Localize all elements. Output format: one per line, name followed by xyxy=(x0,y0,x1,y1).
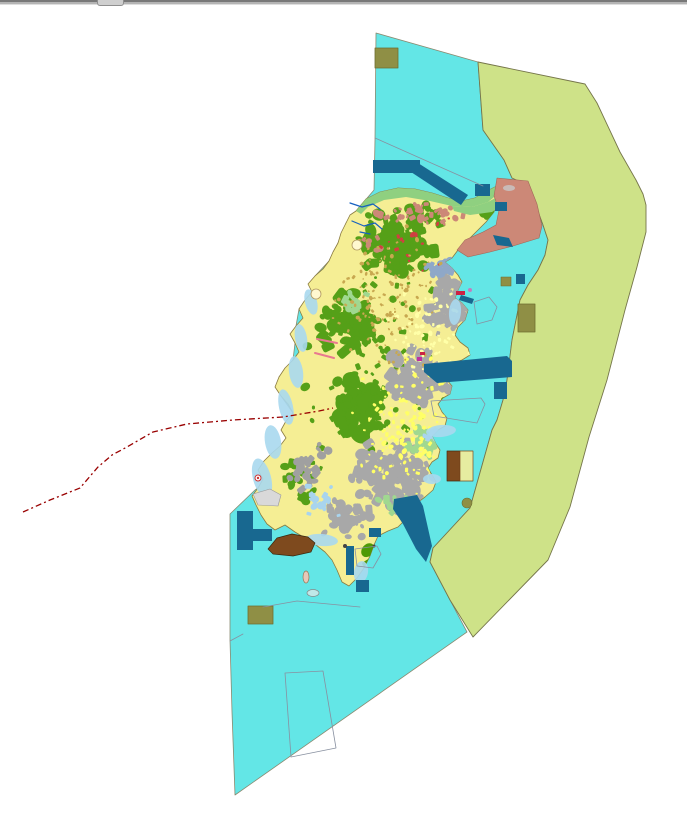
zone-block-khaki xyxy=(518,304,535,332)
yellow-speck-texture xyxy=(382,475,385,479)
channel-texture xyxy=(305,484,312,489)
parcel-web-texture xyxy=(384,264,387,268)
yellow-speck-texture xyxy=(430,386,434,391)
map-viewport xyxy=(0,0,687,821)
zone-block-khaki xyxy=(375,48,398,68)
islet xyxy=(307,590,319,597)
urban-texture xyxy=(378,455,388,469)
yellow-speck-texture xyxy=(363,429,366,431)
harbor-block xyxy=(346,546,354,575)
harbor-block xyxy=(369,528,381,537)
pond-circle xyxy=(352,240,362,250)
yellow-speck-texture xyxy=(427,409,429,412)
forest-texture xyxy=(349,395,353,400)
zone-block-khaki xyxy=(462,498,472,508)
tidal-flat xyxy=(423,474,441,484)
yellow-speck-texture xyxy=(415,493,417,495)
facility-block-pale xyxy=(460,451,473,481)
forest-texture xyxy=(328,310,332,313)
pale-speck-texture xyxy=(411,365,415,368)
forest-texture xyxy=(428,243,440,258)
parcel-web-texture xyxy=(421,285,423,286)
channel-texture xyxy=(423,434,428,438)
urban-texture xyxy=(423,303,435,312)
salmon-speck-texture xyxy=(429,212,433,218)
yellow-speck-texture xyxy=(382,443,386,446)
pale-speck-texture xyxy=(415,325,419,328)
reclaimed-land-spot xyxy=(503,185,515,191)
yellow-speck-texture xyxy=(403,435,405,437)
channel-texture xyxy=(311,493,316,500)
port-mark xyxy=(420,352,425,355)
parcel-web-texture xyxy=(378,297,381,299)
beacon-mark xyxy=(257,477,259,479)
parcel-web-texture xyxy=(388,361,391,365)
islet xyxy=(343,544,347,548)
yellow-speck-texture xyxy=(378,467,381,472)
pale-speck-texture xyxy=(437,335,440,337)
yellow-speck-texture xyxy=(385,432,389,437)
forest-texture xyxy=(370,400,373,404)
zone-block-khaki xyxy=(248,606,273,624)
salmon-speck-texture xyxy=(378,211,382,216)
parcel-web-texture xyxy=(388,298,390,300)
islet xyxy=(303,571,309,583)
yellow-speck-texture xyxy=(371,443,374,445)
salmon-speck-texture xyxy=(423,202,429,206)
port-mark xyxy=(456,291,465,295)
yellow-speck-texture xyxy=(399,399,404,403)
parcel-web-texture xyxy=(365,315,367,317)
zone-block-khaki xyxy=(501,277,511,286)
harbor-block xyxy=(516,274,525,284)
port-mark xyxy=(468,288,472,292)
forest-texture xyxy=(408,237,414,242)
urban-texture xyxy=(445,281,449,286)
parcel-web-texture xyxy=(398,275,400,276)
yellow-speck-texture xyxy=(405,468,408,473)
harbor-block xyxy=(237,511,253,550)
yellow-speck-texture xyxy=(361,377,365,380)
map-canvas[interactable] xyxy=(0,0,687,821)
pale-speck-texture xyxy=(432,323,435,326)
forest-texture xyxy=(403,259,408,263)
forest-texture xyxy=(394,283,399,289)
facility-block-brown xyxy=(447,451,460,481)
harbor-block xyxy=(494,382,507,399)
yellow-speck-texture xyxy=(400,385,404,388)
urban-blue-texture xyxy=(437,273,443,278)
pale-speck-texture xyxy=(405,336,408,340)
harbor-block xyxy=(356,580,369,592)
harbor-block xyxy=(253,529,272,541)
port-mark xyxy=(417,357,422,361)
pond-circle xyxy=(311,289,321,299)
harbor-block xyxy=(495,202,507,211)
